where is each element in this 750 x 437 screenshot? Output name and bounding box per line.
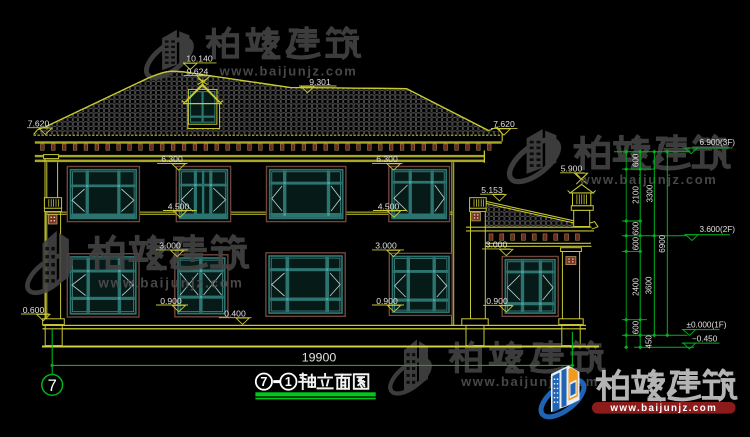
- svg-text:1: 1: [285, 375, 292, 389]
- svg-text:19900: 19900: [302, 351, 337, 365]
- svg-text:9.301: 9.301: [309, 77, 331, 87]
- svg-text:0.600: 0.600: [23, 305, 45, 315]
- svg-text:6.300: 6.300: [161, 154, 183, 164]
- svg-text:600: 600: [631, 236, 640, 250]
- svg-text:5.900: 5.900: [561, 164, 583, 174]
- svg-text:3.600(2F): 3.600(2F): [700, 225, 736, 234]
- svg-text:450: 450: [645, 335, 654, 349]
- svg-text:6900: 6900: [658, 234, 667, 252]
- svg-text:3300: 3300: [646, 184, 655, 202]
- svg-text:4.500: 4.500: [168, 201, 190, 211]
- svg-text:600: 600: [631, 320, 640, 334]
- svg-text:±0.000(1F): ±0.000(1F): [687, 320, 727, 329]
- svg-text:−0.450: −0.450: [692, 335, 718, 344]
- svg-text:7.620: 7.620: [28, 119, 50, 129]
- svg-text:www.baijunjz.com: www.baijunjz.com: [609, 403, 717, 414]
- svg-text:3.000: 3.000: [486, 240, 508, 250]
- svg-text:5.153: 5.153: [481, 185, 503, 195]
- svg-text:0.900: 0.900: [160, 296, 182, 306]
- svg-text:9.624: 9.624: [187, 66, 209, 76]
- svg-text:0.900: 0.900: [486, 296, 508, 306]
- svg-text:7.620: 7.620: [493, 119, 515, 129]
- svg-text:7: 7: [260, 375, 267, 389]
- svg-text:4.500: 4.500: [378, 201, 400, 211]
- svg-text:3600: 3600: [645, 276, 654, 294]
- svg-text:2400: 2400: [631, 278, 640, 296]
- svg-text:2100: 2100: [631, 186, 640, 204]
- svg-text:www.baijunjz.com: www.baijunjz.com: [97, 276, 243, 291]
- svg-text:600: 600: [631, 221, 640, 235]
- svg-text:3.000: 3.000: [375, 241, 397, 251]
- svg-text:0.900: 0.900: [376, 296, 398, 306]
- svg-text:0.400: 0.400: [224, 309, 246, 319]
- svg-text:www.baijunjz.com: www.baijunjz.com: [219, 64, 358, 79]
- svg-text:7: 7: [48, 377, 57, 395]
- svg-text:3.000: 3.000: [159, 241, 181, 251]
- svg-text:10.140: 10.140: [186, 54, 213, 64]
- svg-text:6.300: 6.300: [376, 154, 398, 164]
- svg-text:600: 600: [631, 153, 640, 167]
- svg-text:6.900(3F): 6.900(3F): [700, 138, 736, 147]
